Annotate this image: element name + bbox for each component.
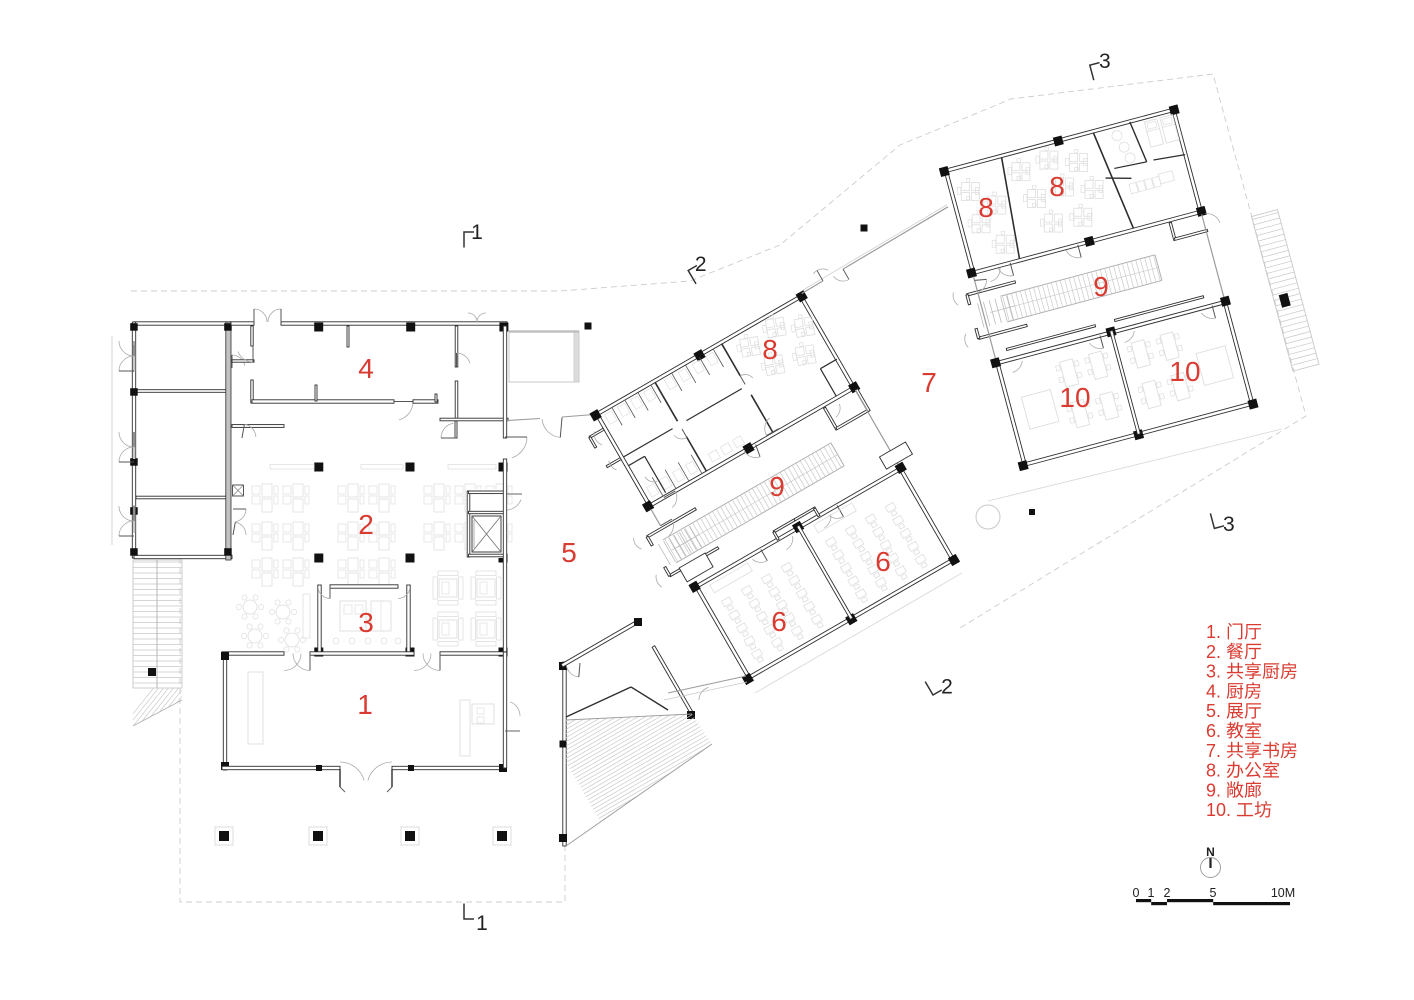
svg-text:1.: 1. bbox=[1206, 622, 1221, 642]
svg-text:9.: 9. bbox=[1206, 780, 1221, 800]
svg-text:7: 7 bbox=[921, 367, 937, 398]
svg-text:3: 3 bbox=[1223, 513, 1235, 536]
svg-text:9: 9 bbox=[1093, 271, 1109, 302]
svg-text:2: 2 bbox=[941, 676, 953, 699]
svg-text:8.: 8. bbox=[1206, 761, 1221, 781]
svg-text:5: 5 bbox=[561, 537, 577, 568]
svg-text:N: N bbox=[1206, 845, 1215, 859]
svg-text:7.: 7. bbox=[1206, 741, 1221, 761]
svg-text:2: 2 bbox=[1164, 886, 1171, 900]
svg-text:10: 10 bbox=[1169, 356, 1200, 387]
svg-text:10: 10 bbox=[1059, 382, 1090, 413]
svg-text:8: 8 bbox=[762, 334, 778, 365]
svg-text:5.: 5. bbox=[1206, 701, 1221, 721]
svg-text:1: 1 bbox=[471, 221, 483, 244]
svg-text:6: 6 bbox=[771, 606, 787, 637]
svg-text:8: 8 bbox=[978, 192, 994, 223]
svg-text:3: 3 bbox=[1099, 50, 1111, 73]
svg-text:4.: 4. bbox=[1206, 681, 1221, 701]
svg-text:1: 1 bbox=[357, 689, 373, 720]
svg-text:6.: 6. bbox=[1206, 721, 1221, 741]
svg-text:2.: 2. bbox=[1206, 642, 1221, 662]
svg-text:9: 9 bbox=[769, 471, 785, 502]
svg-text:3: 3 bbox=[358, 607, 374, 638]
svg-text:10.: 10. bbox=[1206, 800, 1231, 820]
svg-text:6: 6 bbox=[875, 546, 891, 577]
svg-text:8: 8 bbox=[1049, 171, 1065, 202]
svg-text:0: 0 bbox=[1133, 886, 1140, 900]
svg-text:1: 1 bbox=[476, 912, 488, 935]
svg-text:4: 4 bbox=[358, 353, 374, 384]
svg-text:2: 2 bbox=[695, 253, 707, 276]
svg-text:2: 2 bbox=[358, 509, 374, 540]
svg-text:10M: 10M bbox=[1271, 886, 1295, 900]
svg-text:1: 1 bbox=[1148, 886, 1155, 900]
svg-text:5: 5 bbox=[1210, 886, 1217, 900]
svg-text:3.: 3. bbox=[1206, 662, 1221, 682]
